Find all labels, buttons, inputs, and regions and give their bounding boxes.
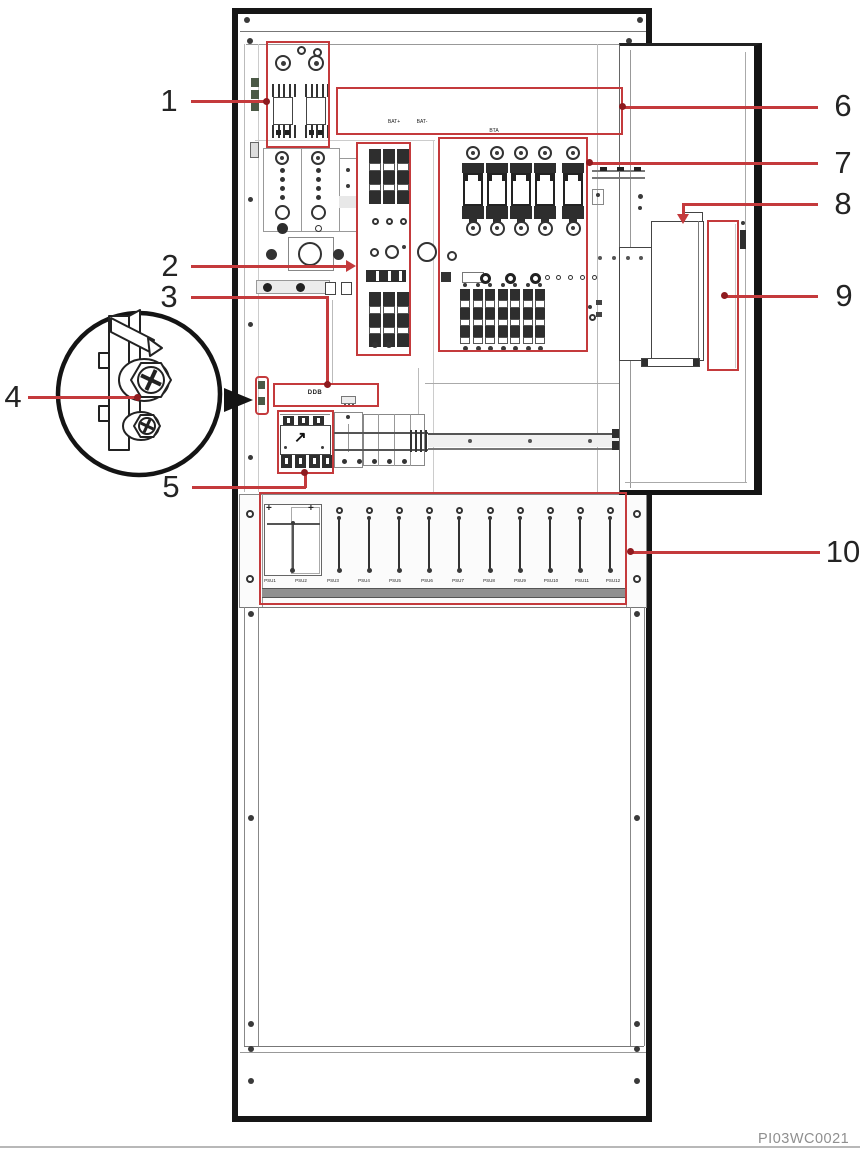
detail-pointer-arrow [224,388,253,412]
bus-column-divider [301,148,302,232]
leader-line-3-vertical [326,296,329,384]
leader-line-3 [191,296,329,299]
small-hole [592,275,597,280]
annotation-box-breaker-column [356,142,411,356]
annotation-box-fuse-units [266,41,330,148]
leader-dot-1 [263,98,270,105]
terminal-dot [316,156,320,160]
bus-dot [316,177,321,182]
leader-line-8 [684,203,818,206]
leader-line-10 [632,551,820,554]
leader-line-7 [591,162,818,165]
bus-lug [275,205,290,220]
callout-7: 7 [834,145,851,181]
bus-dot [316,186,321,191]
panel-screw [248,1078,254,1084]
page-bottom-rule [0,1146,860,1148]
rail-dash [617,167,624,171]
callout-6: 6 [834,88,851,124]
leader-line-2 [191,265,348,268]
din-screw [402,459,407,464]
mark [596,312,602,317]
figure-watermark: PI03WC0021 [758,1131,849,1147]
panel-screw [634,1021,640,1027]
leader-line-9 [726,295,818,298]
panel-screw [634,1078,640,1084]
annotation-box-ground-point [255,376,269,415]
rail-dot [588,439,592,443]
callout-8: 8 [834,186,851,222]
leader-dot-3 [324,381,331,388]
panel-screw [248,1021,254,1027]
terminal-dot [598,256,602,260]
leader-dot-6 [619,103,626,110]
terminal-dot [588,305,592,309]
din-screw [357,459,362,464]
bracket [341,282,352,295]
bus-dot [316,195,321,200]
panel-screw [634,815,640,821]
guide-line [592,177,645,179]
bus-bolt [277,223,288,234]
leader-line-5 [192,486,306,489]
bus-dot [280,195,285,200]
bus-dot [280,168,285,173]
plate-tab [99,406,109,421]
panel-screw [248,611,254,617]
rail-dash [634,167,641,171]
edge-connector [251,78,259,87]
clip [592,189,604,205]
panel-screw [634,611,640,617]
leader-line-4 [28,396,138,399]
bus-dot [280,177,285,182]
bar-bolt [263,283,272,292]
leader-dot-5 [301,469,308,476]
din-screw [372,459,377,464]
busbar-mount-hole [417,242,437,262]
bus-hole [315,225,322,232]
terminal-dot [626,256,630,260]
leader-line-1 [191,100,266,103]
annotation-box-contactor [277,410,334,474]
edge-connector [251,90,259,99]
rail-dot [528,439,532,443]
plate-tab [99,353,109,368]
terminal-dot [280,156,284,160]
din-screw [342,459,347,464]
panel-screw [248,1046,254,1052]
callout-3: 3 [160,279,177,315]
leader-line-6 [624,106,818,109]
callout-1: 1 [160,83,177,119]
leader-dot-10 [627,548,634,555]
terminal-dot [638,206,642,210]
terminal-dot [346,184,350,188]
rail-dot [468,439,472,443]
din-screw [387,459,392,464]
leader-dot-7 [586,159,593,166]
terminal-dot [346,168,350,172]
bar-bolt [296,283,305,292]
callout-5: 5 [162,469,179,505]
terminal-dot [639,256,643,260]
bus-dot [316,168,321,173]
callout-9: 9 [835,278,852,314]
rail-dash [600,167,607,171]
annotation-box-breaker-panel [438,137,588,352]
terminal-ring [589,314,596,321]
leader-arrow-8 [677,214,689,224]
leader-dot-9 [721,292,728,299]
mount-bolt [266,249,277,260]
terminal-dot [638,194,643,199]
bracket [325,282,336,295]
callout-10: 10 [826,534,860,570]
leader-dot-4 [134,394,141,401]
edge-clip [250,142,259,158]
terminal-dot [596,193,600,197]
mark [596,300,602,305]
callout-4: 4 [4,379,21,415]
bus-dot [280,186,285,191]
mount-hole [298,242,322,266]
mount-bolt [333,249,344,260]
panel-screw [634,1046,640,1052]
terminal-dot [612,256,616,260]
panel-screw [248,815,254,821]
bus-lug [311,205,326,220]
leader-arrow-2 [346,260,356,272]
annotation-box-terminal-strip [336,87,623,135]
edge-connector [251,102,259,111]
figure-canvas: DDB ↗ [0,0,860,1153]
annotation-box-psu-slots [259,492,627,605]
